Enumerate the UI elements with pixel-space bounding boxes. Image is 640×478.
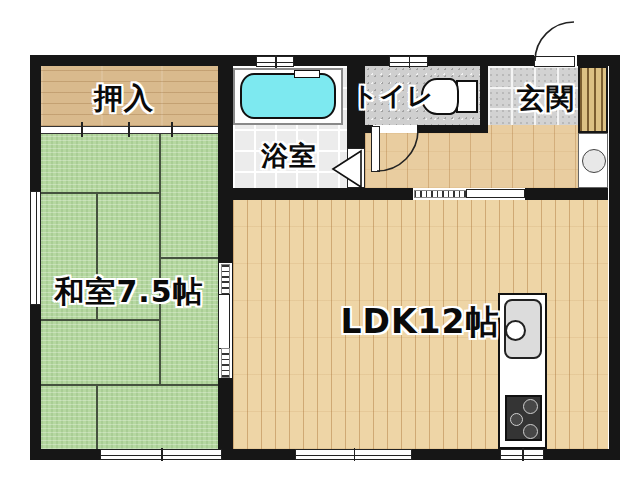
- room-label-genkan: 玄関: [517, 80, 575, 118]
- room-label-closet: 押入: [94, 79, 154, 119]
- bathroom-folding-door-icon: [333, 151, 361, 187]
- room-label-bathroom: 浴室: [261, 138, 317, 174]
- room-label-toilet: トイレ: [352, 79, 435, 114]
- door-swing-overlay: [0, 0, 640, 478]
- room-label-washitsu: 和室7.5帖: [54, 272, 203, 313]
- entrance-door-swing-icon: [535, 22, 574, 61]
- toilet-door-swing-icon: [377, 130, 418, 171]
- room-label-ldk: LDK12帖: [341, 300, 500, 345]
- floor-plan: 押入 浴室 トイレ 玄関 和室7.5帖 LDK12帖: [0, 0, 640, 478]
